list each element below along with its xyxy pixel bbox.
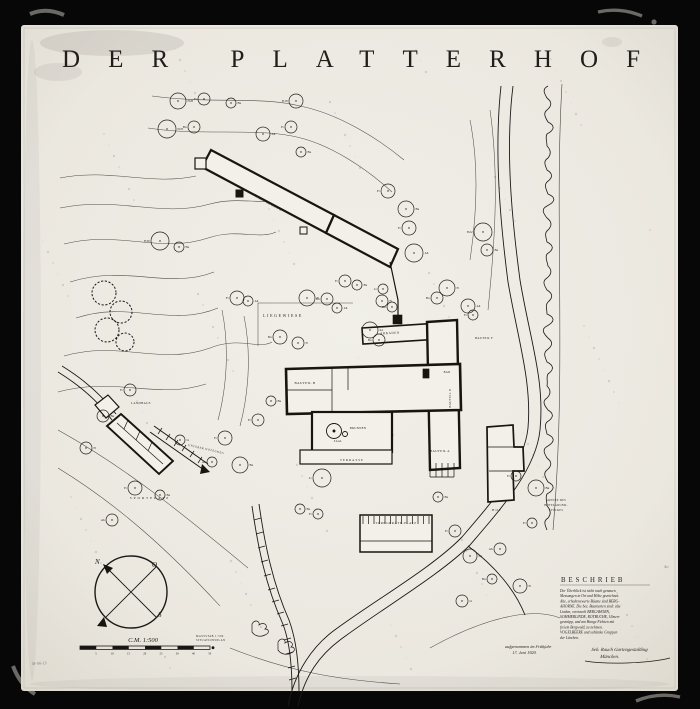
tree-species-label: Fi [194,97,197,101]
plan-label: SPORTPLATZ [130,496,171,500]
plan-label: HOTELGRUND- [544,504,567,507]
tree-species-label: Fi [309,512,312,516]
tree-species-label: Ah [255,299,259,303]
plan-label: ARKADEN [380,331,400,336]
scale-label: C.M. 1:500 [128,637,159,644]
tree-species-label: Fi [464,313,467,317]
tree-species-label: Fi18 [282,99,288,103]
tree-species-label: Bu [250,463,254,467]
tree-species-label: Ah [425,251,429,255]
scan-smudge [602,37,622,47]
beschrieb-line: der Lärchen. [560,636,579,640]
plan-label: BAUTEIL F [475,336,493,340]
tree-species-label: Bu [416,207,420,211]
plan-label: BAUTEIL A [430,449,450,453]
plan-label: BAD [444,371,451,374]
scan-smudge [23,40,41,680]
tree-species-label: Ah [344,306,348,310]
plate-mark: 4a [664,564,669,569]
plan-label: GRENZE DES [546,499,566,502]
tree-species-label: Bu [426,296,430,300]
tree-species-label: Fi [507,474,510,478]
plan-label: TERRASSE [340,458,364,462]
tree-species-label: Fi [120,388,123,392]
tree-species-label: Fi [335,279,338,283]
tree-species-label: Bu [479,554,483,558]
tree-species-label: Fi [398,226,401,230]
beschrieb-line: AHORNE. Die bez. Baumarten sind: alte [559,605,621,609]
tree-species-label: Bu [364,283,368,287]
tree-species-label: Ah [272,132,276,136]
tree-species-label: Fi [248,418,251,422]
plan-label: HOF [492,508,502,512]
tree-species-label: Bu [268,335,272,339]
plan-label: SAAL [334,440,343,443]
tree-species-label: Fi [281,125,284,129]
scan-smudge [30,676,670,692]
survey-note-line2: 17. Juni 1920. [512,650,537,655]
tree-species-label: Fi [529,584,532,588]
plan-label: BRUNNEN [350,426,367,430]
tree-species-label: Fi [94,446,97,450]
legend-small-line1: MASSSTAB 1:500 [196,635,224,638]
tree-species-label: Fi [523,521,526,525]
tree-species-label: Bu [495,248,499,252]
tree-species-label: Bu [183,125,187,129]
tree-species-label: Fi [214,436,217,440]
tree-species-label: Bu [307,507,311,511]
tree-species-label: Li [374,287,377,291]
tree-species-label: Bu [316,297,320,301]
tree-species-label: Fi [377,189,380,193]
plan-label: BAUTEIL D [448,388,452,408]
building-saal-block [312,412,392,452]
tree-species-label: Ah [489,547,493,551]
beschrieb-line: Der Überblick ist nicht nach genauen [559,588,616,593]
tree-species-label: Bu [382,305,386,309]
tree-species-label: Bu [238,101,242,105]
tree-species-label: Fi [124,486,127,490]
compass-s: S [158,611,162,619]
tree-species-label: Fi20 [188,99,194,103]
scanned-plan-photograph: DER PLATTERHOF [0,0,700,709]
site-plan-drawing: DER PLATTERHOF [0,0,700,709]
tree-species-label: Bu [111,414,115,418]
tree-species-label: Fi [457,286,460,290]
corner-mark: M-06-13 [31,660,47,666]
compass-n: N [94,558,100,566]
plan-label: BAUTEIL B [294,381,315,385]
tree-species-label: Ah [202,460,206,464]
plan-label: LANDHAUS [131,401,151,405]
tree-species-label: Bu [546,486,550,490]
beschrieb-heading: BESCHRIEB [561,577,625,584]
tree-species-label: Fi22 [467,230,473,234]
legend-small-line2: SITUATIONSPLAN [196,639,226,642]
survey-note-line1: aufgenommen im Frühjahr [505,644,552,649]
plan-label: LIEGEWIESE [263,313,303,318]
plan-label: STÜCKES [549,509,564,512]
tree-species-label: Bu [482,577,486,581]
tree-species-label: Bu [186,245,190,249]
beschrieb-line: VOGELBEERE und schlanke Gruppen [560,631,617,635]
tree-species-label: Fi30 [144,239,150,243]
tree-species-label: Li [309,476,312,480]
tree-species-label: Li [187,438,190,442]
plan-label: TURNGERÄTE-PLATZ [375,520,416,525]
tree-species-label: Fi [226,296,229,300]
tree-species-label: Bu [368,338,372,342]
tree-species-label: Fi [445,529,448,533]
signature-line1: Seb. Rauch Gartengestaltung [591,648,649,653]
tree-species-label: Ah [101,518,105,522]
building-bauteil-b [286,364,461,414]
compass-o: O [152,561,157,569]
signature-line2: München. [599,655,620,660]
tree-species-label: Li [470,599,473,603]
beschrieb-line: Messungen in Ort und Höhe gezeichnet. [559,594,619,598]
tree-species-label: Fi [306,341,309,345]
tree-species-label: Bu [278,399,282,403]
tree-species-label: Bu [445,495,449,499]
tree-species-label: Ah [477,304,481,308]
tree-species-label: Bu [308,150,312,154]
